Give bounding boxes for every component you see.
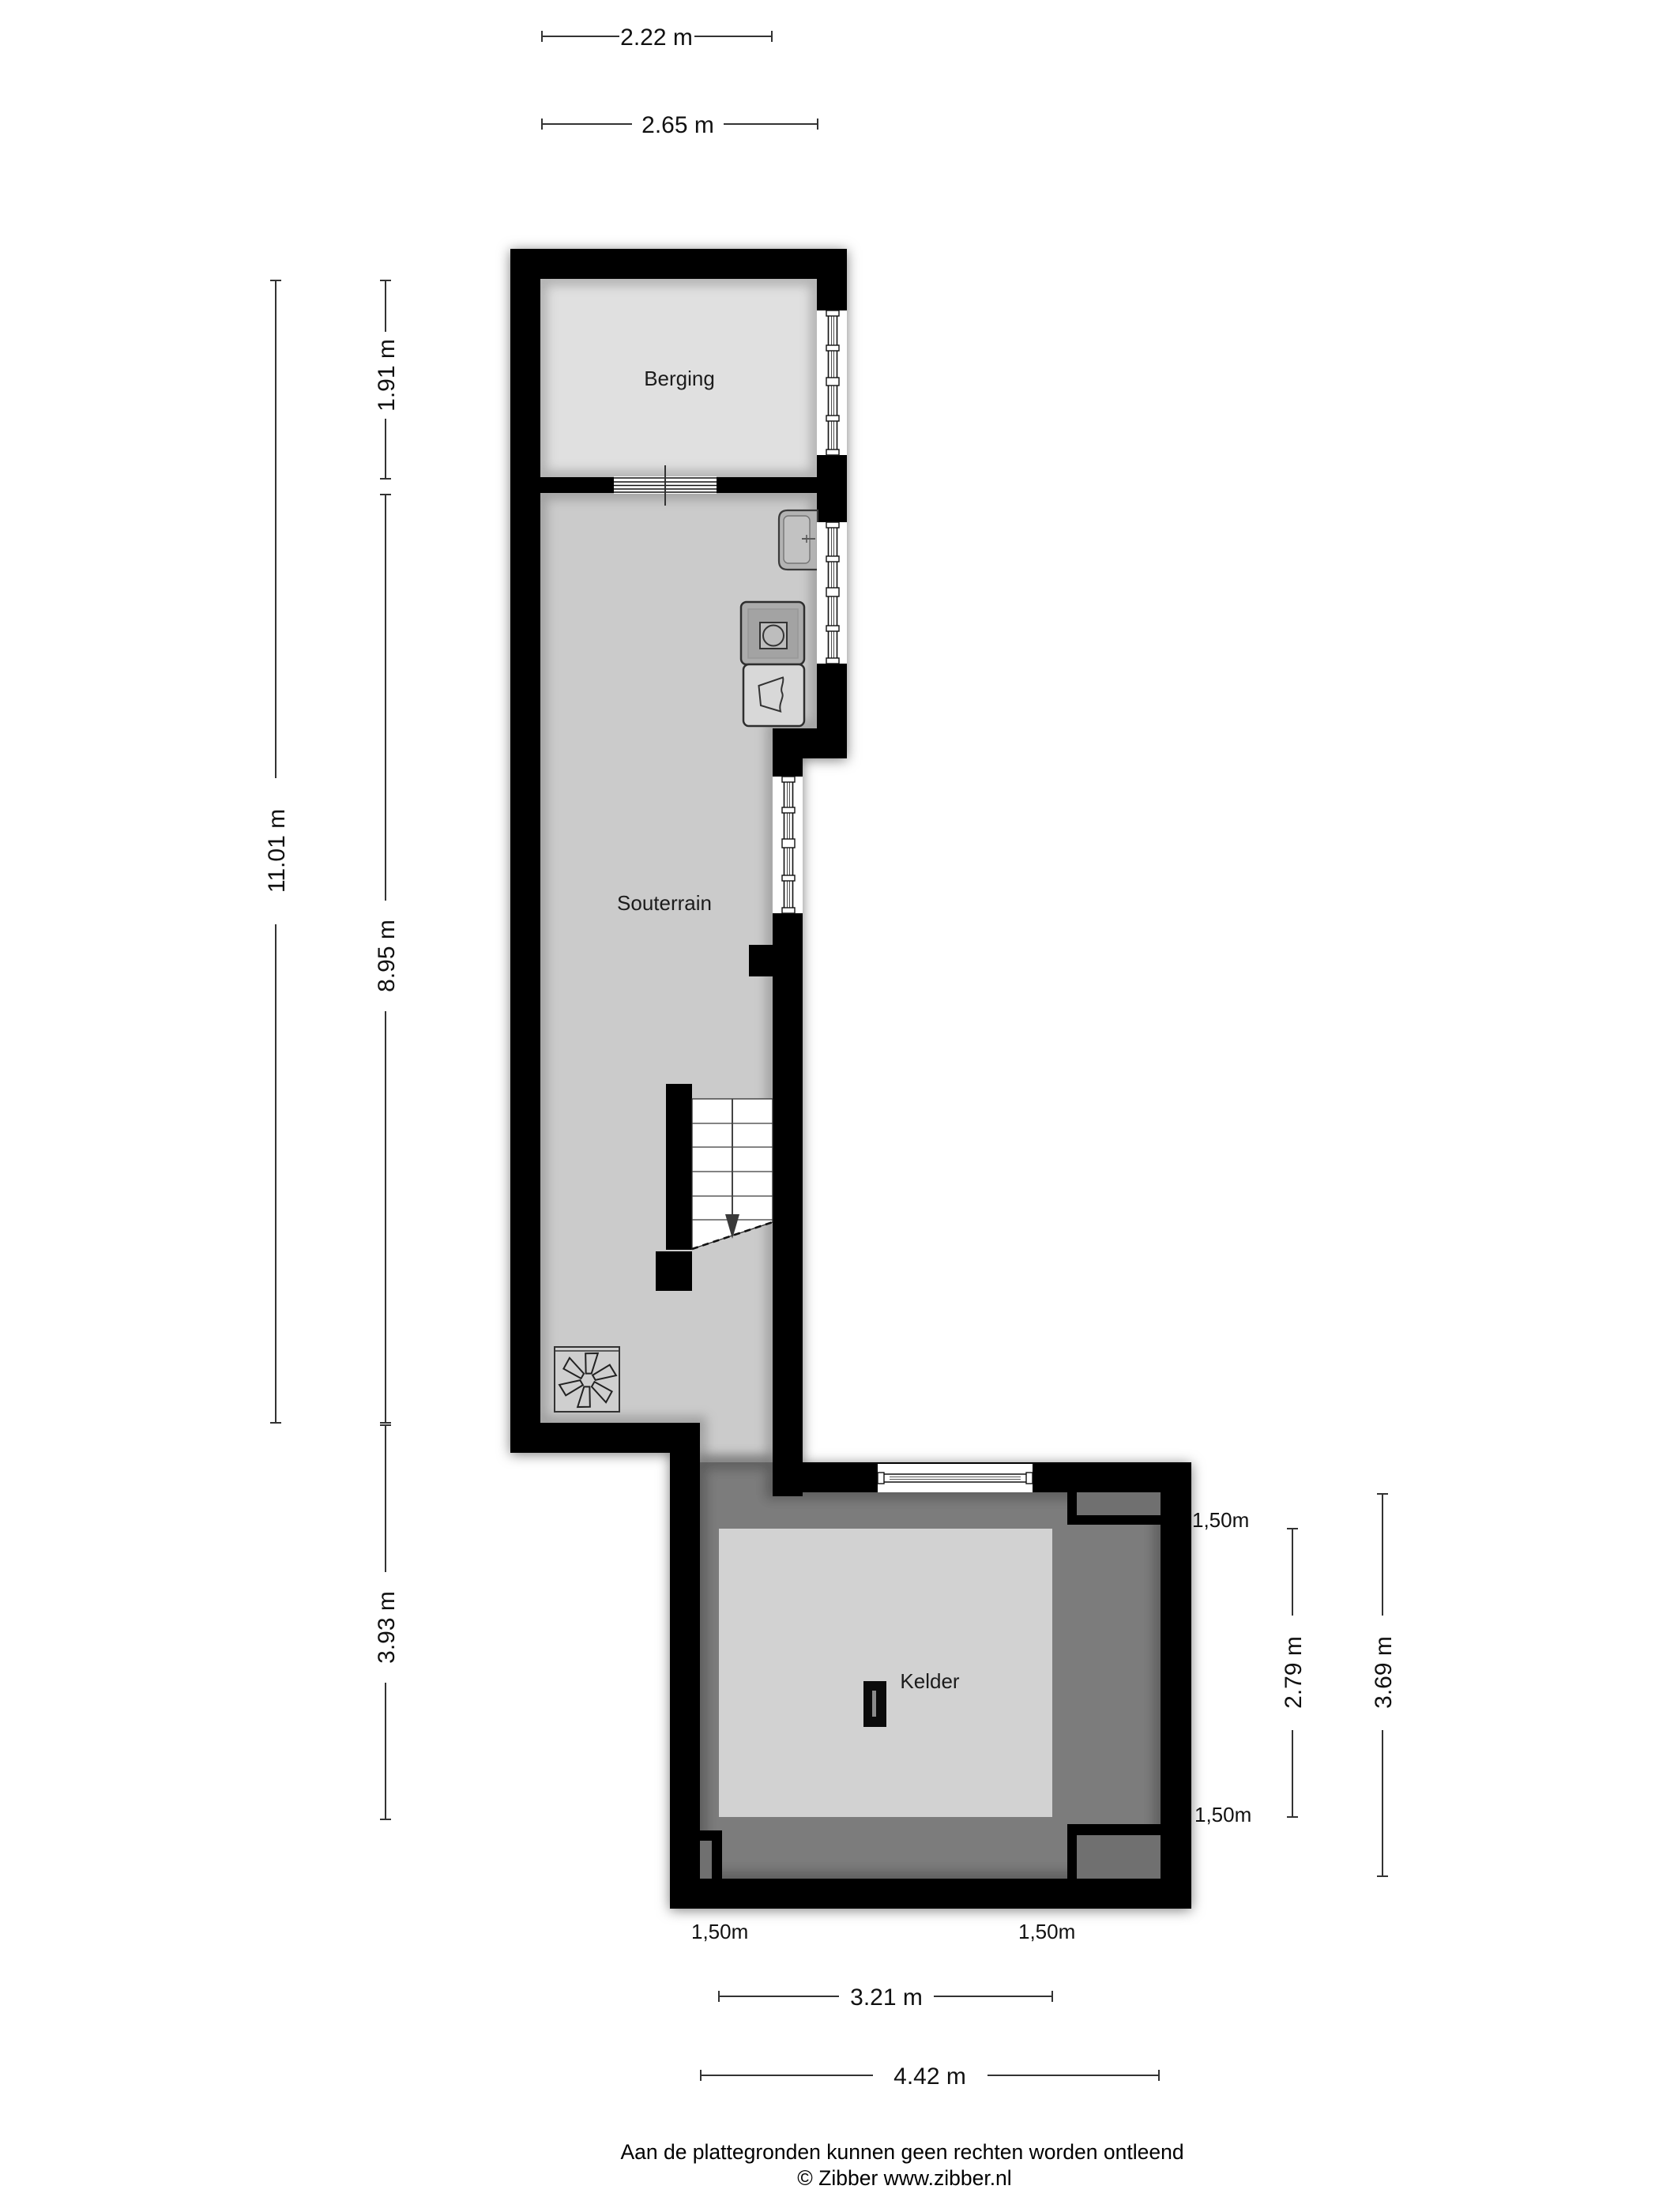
svg-text:3.21 m: 3.21 m	[850, 1984, 923, 2011]
svg-text:© Zibber www.zibber.nl: © Zibber www.zibber.nl	[797, 2166, 1011, 2190]
svg-text:Souterrain: Souterrain	[617, 891, 712, 915]
svg-text:8.95 m: 8.95 m	[374, 920, 400, 992]
svg-text:1.91 m: 1.91 m	[374, 339, 400, 412]
svg-text:1,50m: 1,50m	[1018, 1920, 1075, 1943]
svg-text:Kelder: Kelder	[900, 1669, 959, 1693]
svg-text:Aan de plattegronden kunnen ge: Aan de plattegronden kunnen geen rechten…	[620, 2140, 1183, 2164]
svg-text:3.93 m: 3.93 m	[374, 1591, 400, 1664]
svg-text:2.79 m: 2.79 m	[1281, 1636, 1307, 1709]
svg-text:Berging: Berging	[644, 367, 715, 390]
svg-text:1,50m: 1,50m	[691, 1920, 748, 1943]
svg-text:2.65 m: 2.65 m	[641, 112, 714, 138]
svg-text:1,50m: 1,50m	[1194, 1803, 1251, 1826]
svg-text:11.01 m: 11.01 m	[264, 809, 290, 893]
svg-text:2.22 m: 2.22 m	[620, 24, 693, 51]
svg-text:4.42 m: 4.42 m	[893, 2063, 966, 2090]
svg-text:1,50m: 1,50m	[1192, 1508, 1249, 1532]
svg-text:3.69 m: 3.69 m	[1371, 1636, 1397, 1709]
